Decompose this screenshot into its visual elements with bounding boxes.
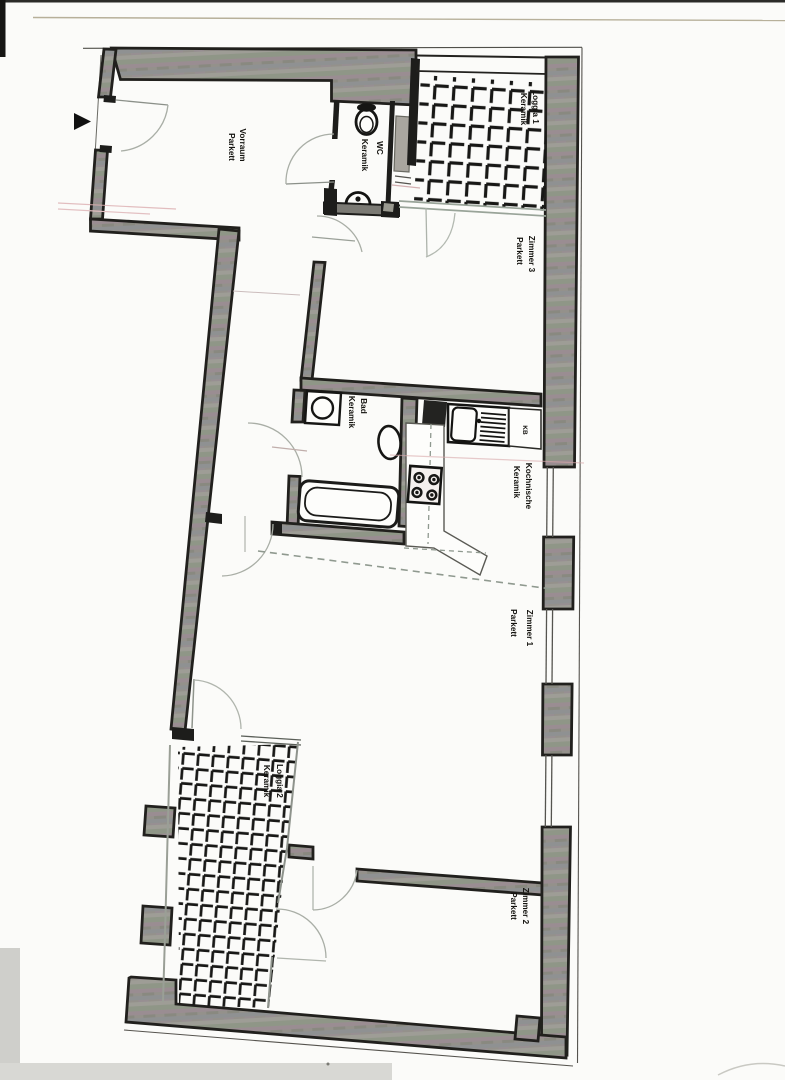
svg-text:Zimmer 2: Zimmer 2 (521, 888, 530, 925)
svg-text:Parkett: Parkett (515, 237, 524, 265)
svg-text:Keramik: Keramik (512, 466, 521, 499)
svg-text:Parkett: Parkett (227, 133, 236, 161)
svg-text:Zimmer 1: Zimmer 1 (525, 610, 534, 647)
svg-text:Keramik: Keramik (519, 93, 528, 126)
svg-text:Loggia 2: Loggia 2 (275, 764, 284, 798)
svg-text:Keramik: Keramik (262, 765, 271, 798)
svg-text:Bad: Bad (359, 398, 368, 413)
svg-text:Parkett: Parkett (509, 609, 518, 637)
svg-text:Loggia 1: Loggia 1 (531, 90, 540, 124)
svg-text:Keramik: Keramik (347, 396, 356, 429)
svg-text:Kochnische: Kochnische (524, 463, 533, 510)
svg-text:Vorraum: Vorraum (238, 128, 247, 161)
svg-text:WC: WC (375, 141, 384, 155)
svg-text:Keramik: Keramik (360, 139, 369, 172)
svg-text:Zimmer 3: Zimmer 3 (527, 236, 536, 273)
svg-text:Parkett: Parkett (509, 892, 518, 920)
svg-text:KB: KB (521, 425, 528, 435)
